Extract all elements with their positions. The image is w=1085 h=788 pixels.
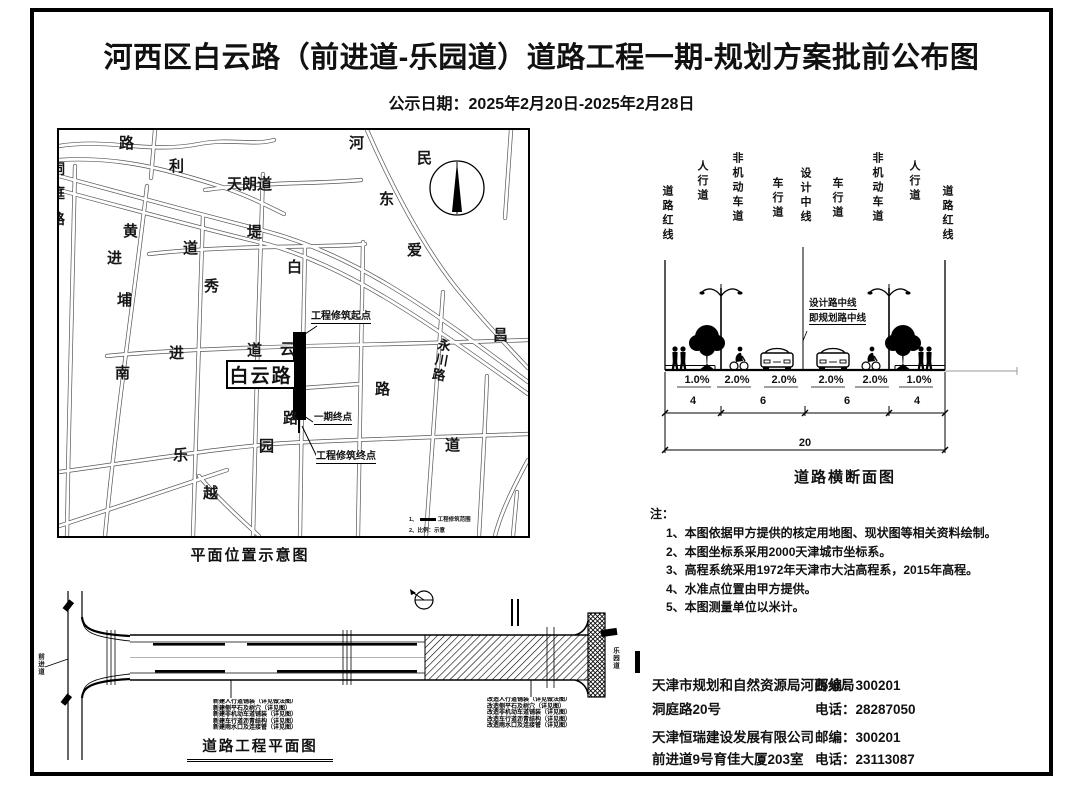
centerline-note-1: 设计路中线 <box>809 299 857 310</box>
street-char: 黄 <box>123 224 138 239</box>
right-cross-road-name: 乐园道 <box>611 647 618 670</box>
lane-label: 车行道 <box>828 177 842 221</box>
contact-value: 邮编：300201 <box>815 674 901 694</box>
street-char: 庭 <box>57 186 65 200</box>
note-item: 4、水准点位置由甲方提供。 <box>666 580 1045 599</box>
map-caption: 平面位置示意图 <box>140 544 360 565</box>
lane-label: 道路红线 <box>658 185 672 243</box>
street-char: 云 <box>280 342 295 357</box>
contact-name: 前进道9号育佳大厦203室 <box>652 748 804 768</box>
street-char: 进 <box>107 251 122 266</box>
slope-value: 2.0% <box>811 374 851 386</box>
centerline-note-2: 即规划路中线 <box>809 314 866 325</box>
notes-list: 1、本图依据甲方提供的核定用地图、现状图等相关资料绘制。2、本图坐标系采用200… <box>650 524 1045 617</box>
contact-value: 电话：23113087 <box>815 748 915 768</box>
contact-name: 洞庭路20号 <box>652 698 721 718</box>
left-intersection <box>68 591 130 760</box>
note-item: 5、本图测量单位以米计。 <box>666 598 1045 617</box>
annotation-line: 新建人行道铺装（详见做法图） <box>213 699 317 706</box>
note-item: 3、高程系统采用1972年天津市大沽高程系，2015年高程。 <box>666 561 1045 580</box>
map-roads-svg <box>59 130 528 536</box>
construction-end-label: 工程修筑终点 <box>316 451 376 464</box>
street-char: 路 <box>119 136 134 151</box>
street-char: 南 <box>115 366 130 381</box>
lane-label: 车行道 <box>768 177 782 221</box>
street-char: 天朗道 <box>227 177 272 192</box>
contact-value: 邮编：300201 <box>815 726 901 746</box>
annotation-block-2: 改造人行道铺装（详见做法图）改造侧平石及树穴（详见图）改造非机动车道铺装（详见图… <box>487 697 591 730</box>
note-item: 2、本图坐标系采用2000天津城市坐标系。 <box>666 543 1045 562</box>
slope-value: 2.0% <box>717 374 757 386</box>
street-char: 爱 <box>407 243 422 258</box>
annotation-line: 改造非机动车道铺装（详见图） <box>487 710 591 717</box>
plan-svg <box>35 585 650 770</box>
plan-caption: 道路工程平面图 <box>187 735 333 762</box>
street-char: 埔 <box>117 293 132 308</box>
north-compass <box>430 161 484 215</box>
construction-start-label: 工程修筑起点 <box>311 311 371 324</box>
contact-value: 电话：28287050 <box>815 698 916 718</box>
notes-title: 注： <box>650 505 1045 522</box>
plan-north-symbol <box>410 589 433 609</box>
slope-value: 2.0% <box>764 374 804 386</box>
street-char: 园 <box>259 439 274 454</box>
dim-value: 4 <box>897 395 937 407</box>
street-char: 秀 <box>204 279 219 294</box>
road-plan: 前进道 乐园道 新建人行道铺装（详见做法图）新建侧平石及树穴（详见图）新建非机动… <box>35 585 650 770</box>
annotation-block-1: 新建人行道铺装（详见做法图）新建侧平石及树穴（详见图）新建非机动车道铺装（详见图… <box>213 699 317 732</box>
street-char: 民 <box>417 151 432 166</box>
street-char: 道 <box>247 343 262 358</box>
street-char: 昌 <box>493 328 508 343</box>
lane-label: 人行道 <box>693 160 707 204</box>
lane-label: 人行道 <box>905 160 919 204</box>
annotation-line: 改造雨水口及连接管（详见图） <box>487 723 591 730</box>
street-char: 利 <box>169 159 184 174</box>
lane-label: 设计中线 <box>796 167 810 225</box>
annotation-line: 改造人行道铺装（详见做法图） <box>487 697 591 704</box>
section-figures <box>672 284 933 370</box>
contact-name: 天津恒瑞建设发展有限公司 <box>652 726 814 746</box>
street-char: 堤 <box>247 225 262 240</box>
street-char: 道 <box>445 438 460 453</box>
phase-hatch-area <box>425 613 605 697</box>
street-char: 河 <box>349 136 364 151</box>
dim-value: 4 <box>673 395 713 407</box>
map-legend-line1: 1、 工程修筑范围 <box>409 515 471 523</box>
street-char: 白 <box>287 260 302 275</box>
map-legend-line2: 2、比例：示意 <box>409 526 445 534</box>
street-char: 洞 <box>57 162 65 176</box>
publish-date: 公示日期：2025年2月20日-2025年2月28日 <box>30 90 1053 114</box>
phase1-end-label: 一期终点 <box>314 413 352 425</box>
street-char: 进 <box>169 346 184 361</box>
slope-value: 1.0% <box>677 374 717 386</box>
annotation-line: 新建雨水口及连接管（详见图） <box>213 725 317 732</box>
legend-text: 工程修筑范围 <box>438 515 471 523</box>
note-item: 1、本图依据甲方提供的核定用地图、现状图等相关资料绘制。 <box>666 524 1045 543</box>
lane-label: 非机动车道 <box>728 152 742 225</box>
baiyun-road-box: 白云路 <box>226 360 296 389</box>
left-cross-road-name: 前进道 <box>36 653 43 676</box>
street-char: 东 <box>379 192 394 207</box>
legend-no: 1、 <box>409 515 418 523</box>
street-char: 越 <box>203 486 218 501</box>
total-width-value: 20 <box>785 437 825 449</box>
slope-value: 2.0% <box>855 374 895 386</box>
dim-value: 6 <box>827 395 867 407</box>
notice-sheet: { "page": { "title": "河西区白云路（前进道-乐园道）道路工… <box>0 0 1085 788</box>
page-title: 河西区白云路（前进道-乐园道）道路工程一期-规划方案批前公布图 <box>30 34 1053 76</box>
street-char: 路 <box>375 382 390 397</box>
cross-section-caption: 道路横断面图 <box>765 466 925 487</box>
location-map: 路利河民天朗道东黄堤道进白爱秀埔道云进南路昌路园乐道越 洞庭路 永川路 工程修筑… <box>57 128 530 538</box>
cross-section: 道路红线人行道非机动车道车行道设计中线车行道非机动车道人行道道路红线 设计路中线… <box>645 135 1025 500</box>
street-char: 乐 <box>173 448 188 463</box>
legend-bar-swatch <box>420 518 436 521</box>
notes-block: 注： 1、本图依据甲方提供的核定用地图、现状图等相关资料绘制。2、本图坐标系采用… <box>650 505 1045 617</box>
street-char: 道 <box>183 241 198 256</box>
street-char: 路 <box>283 411 298 426</box>
dim-value: 6 <box>743 395 783 407</box>
street-char: 路 <box>57 212 65 226</box>
annotation-line: 新建非机动车道铺装（详见图） <box>213 712 317 719</box>
lane-label: 道路红线 <box>938 185 952 243</box>
lane-label: 非机动车道 <box>868 152 882 225</box>
slope-value: 1.0% <box>899 374 939 386</box>
